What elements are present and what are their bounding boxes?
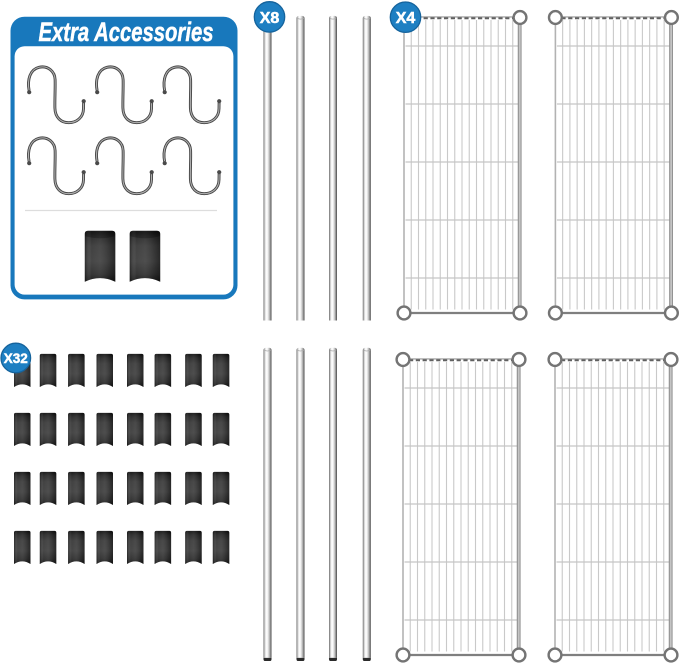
- svg-text:Extra Accessories: Extra Accessories: [39, 17, 214, 47]
- svg-text:X32: X32: [4, 351, 28, 366]
- svg-text:X4: X4: [396, 10, 416, 27]
- svg-text:X8: X8: [260, 10, 280, 27]
